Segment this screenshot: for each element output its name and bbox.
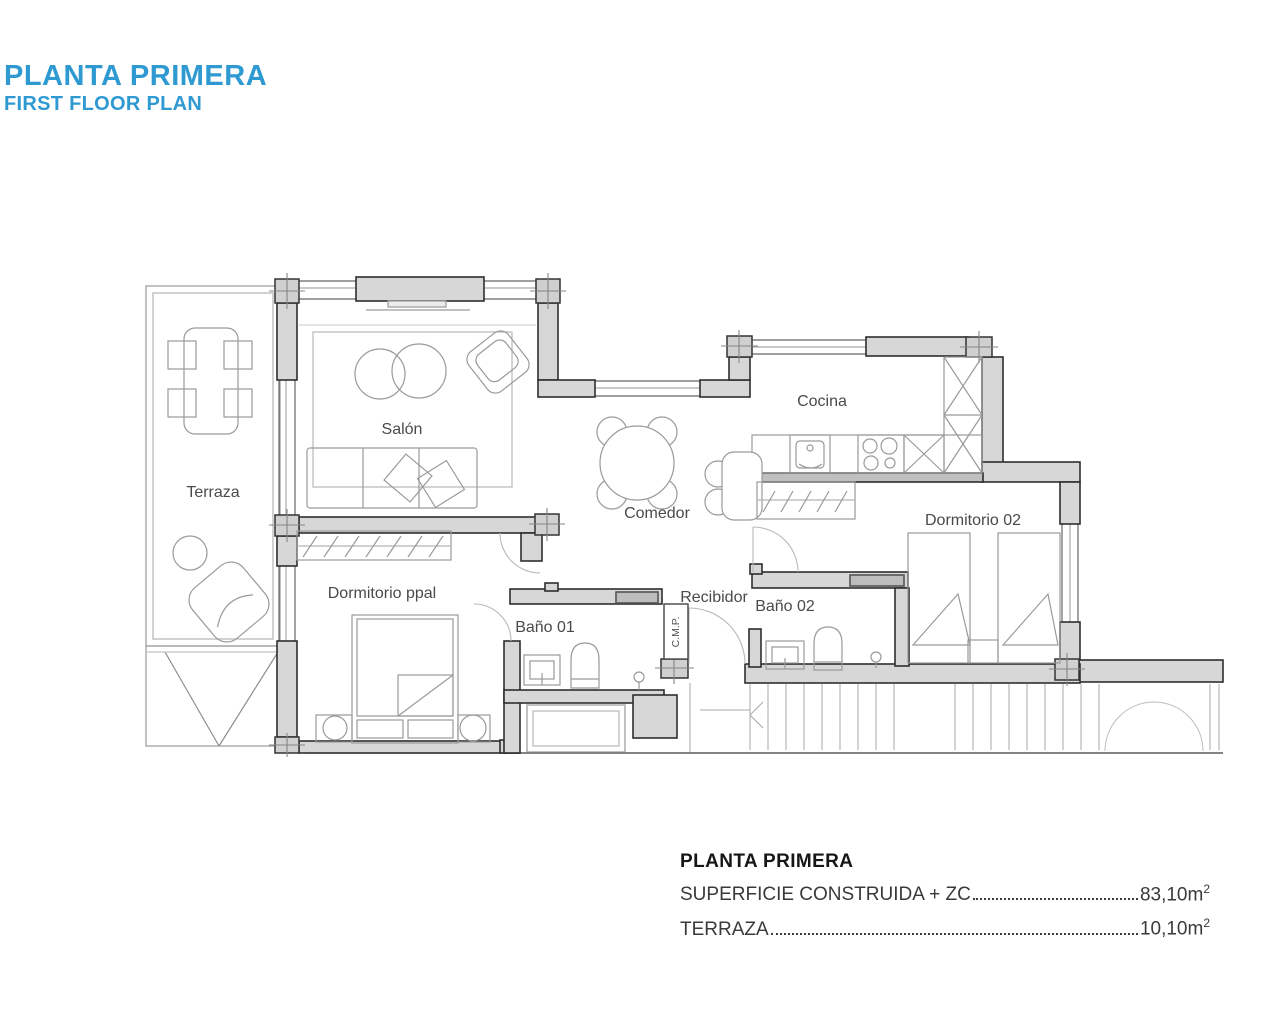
cushion (384, 454, 432, 502)
pillar (269, 509, 305, 542)
dotted-leader (771, 933, 1138, 935)
summary-title: PLANTA PRIMERA (680, 851, 1210, 873)
terrace-table (184, 328, 238, 434)
shower-fixture (871, 652, 881, 662)
pillar (530, 273, 566, 309)
terrace-chair (168, 389, 196, 417)
rug (313, 332, 512, 487)
room-label-dorm02: Dormitorio 02 (925, 512, 1021, 529)
pillow (357, 720, 403, 738)
nightstand (968, 640, 998, 663)
dining-table (600, 426, 674, 500)
room-label-cmp: C.M.P. (670, 617, 682, 648)
toilet (571, 643, 599, 688)
summary-row-value: 10,10m2 (1140, 909, 1210, 943)
peninsula (722, 452, 762, 520)
summary-row: SUPERFICIE CONSTRUIDA + ZC 83,10m2 (680, 875, 1210, 909)
entry-void (527, 705, 625, 752)
terrace-side-table (173, 536, 207, 570)
room-label-recibidor: Recibidor (680, 589, 748, 606)
dorm-ppal-furniture (297, 531, 490, 743)
sofa (307, 448, 477, 508)
room-label-salon: Salón (382, 421, 423, 438)
pillar (269, 273, 305, 309)
coffee-table (392, 344, 446, 398)
bano01-fixtures (524, 643, 644, 690)
summary-row-label: TERRAZA (680, 916, 769, 944)
salon-furniture (299, 301, 536, 508)
dotted-leader (973, 898, 1138, 900)
room-label-bano01: Baño 01 (515, 619, 575, 636)
armchair (463, 327, 533, 397)
pillar (269, 733, 305, 757)
shower-fixture (634, 672, 644, 682)
coffee-table (355, 349, 405, 399)
room-label-comedor: Comedor (624, 505, 690, 522)
room-label-dorm-ppal: Dormitorio ppal (328, 585, 436, 602)
terraza-zone (146, 286, 280, 746)
room-label-cocina: Cocina (797, 393, 847, 410)
single-bed (908, 533, 970, 663)
room-label-terraza: Terraza (186, 484, 239, 501)
comedor-furniture (597, 417, 677, 509)
pillow (408, 720, 453, 738)
pillar (721, 330, 758, 363)
terrace-lounge-chair (183, 556, 276, 649)
terrace-chair (168, 341, 196, 369)
single-bed (998, 533, 1060, 663)
room-label-bano02: Baño 02 (755, 598, 815, 615)
wall-block-tv (356, 277, 484, 301)
tv (388, 301, 446, 307)
area-summary: PLANTA PRIMERA SUPERFICIE CONSTRUIDA + Z… (680, 851, 1210, 944)
summary-row-value: 83,10m2 (1140, 875, 1210, 909)
summary-row: TERRAZA 10,10m2 (680, 909, 1210, 943)
double-bed (352, 615, 458, 743)
summary-row-label: SUPERFICIE CONSTRUIDA + ZC (680, 881, 971, 909)
